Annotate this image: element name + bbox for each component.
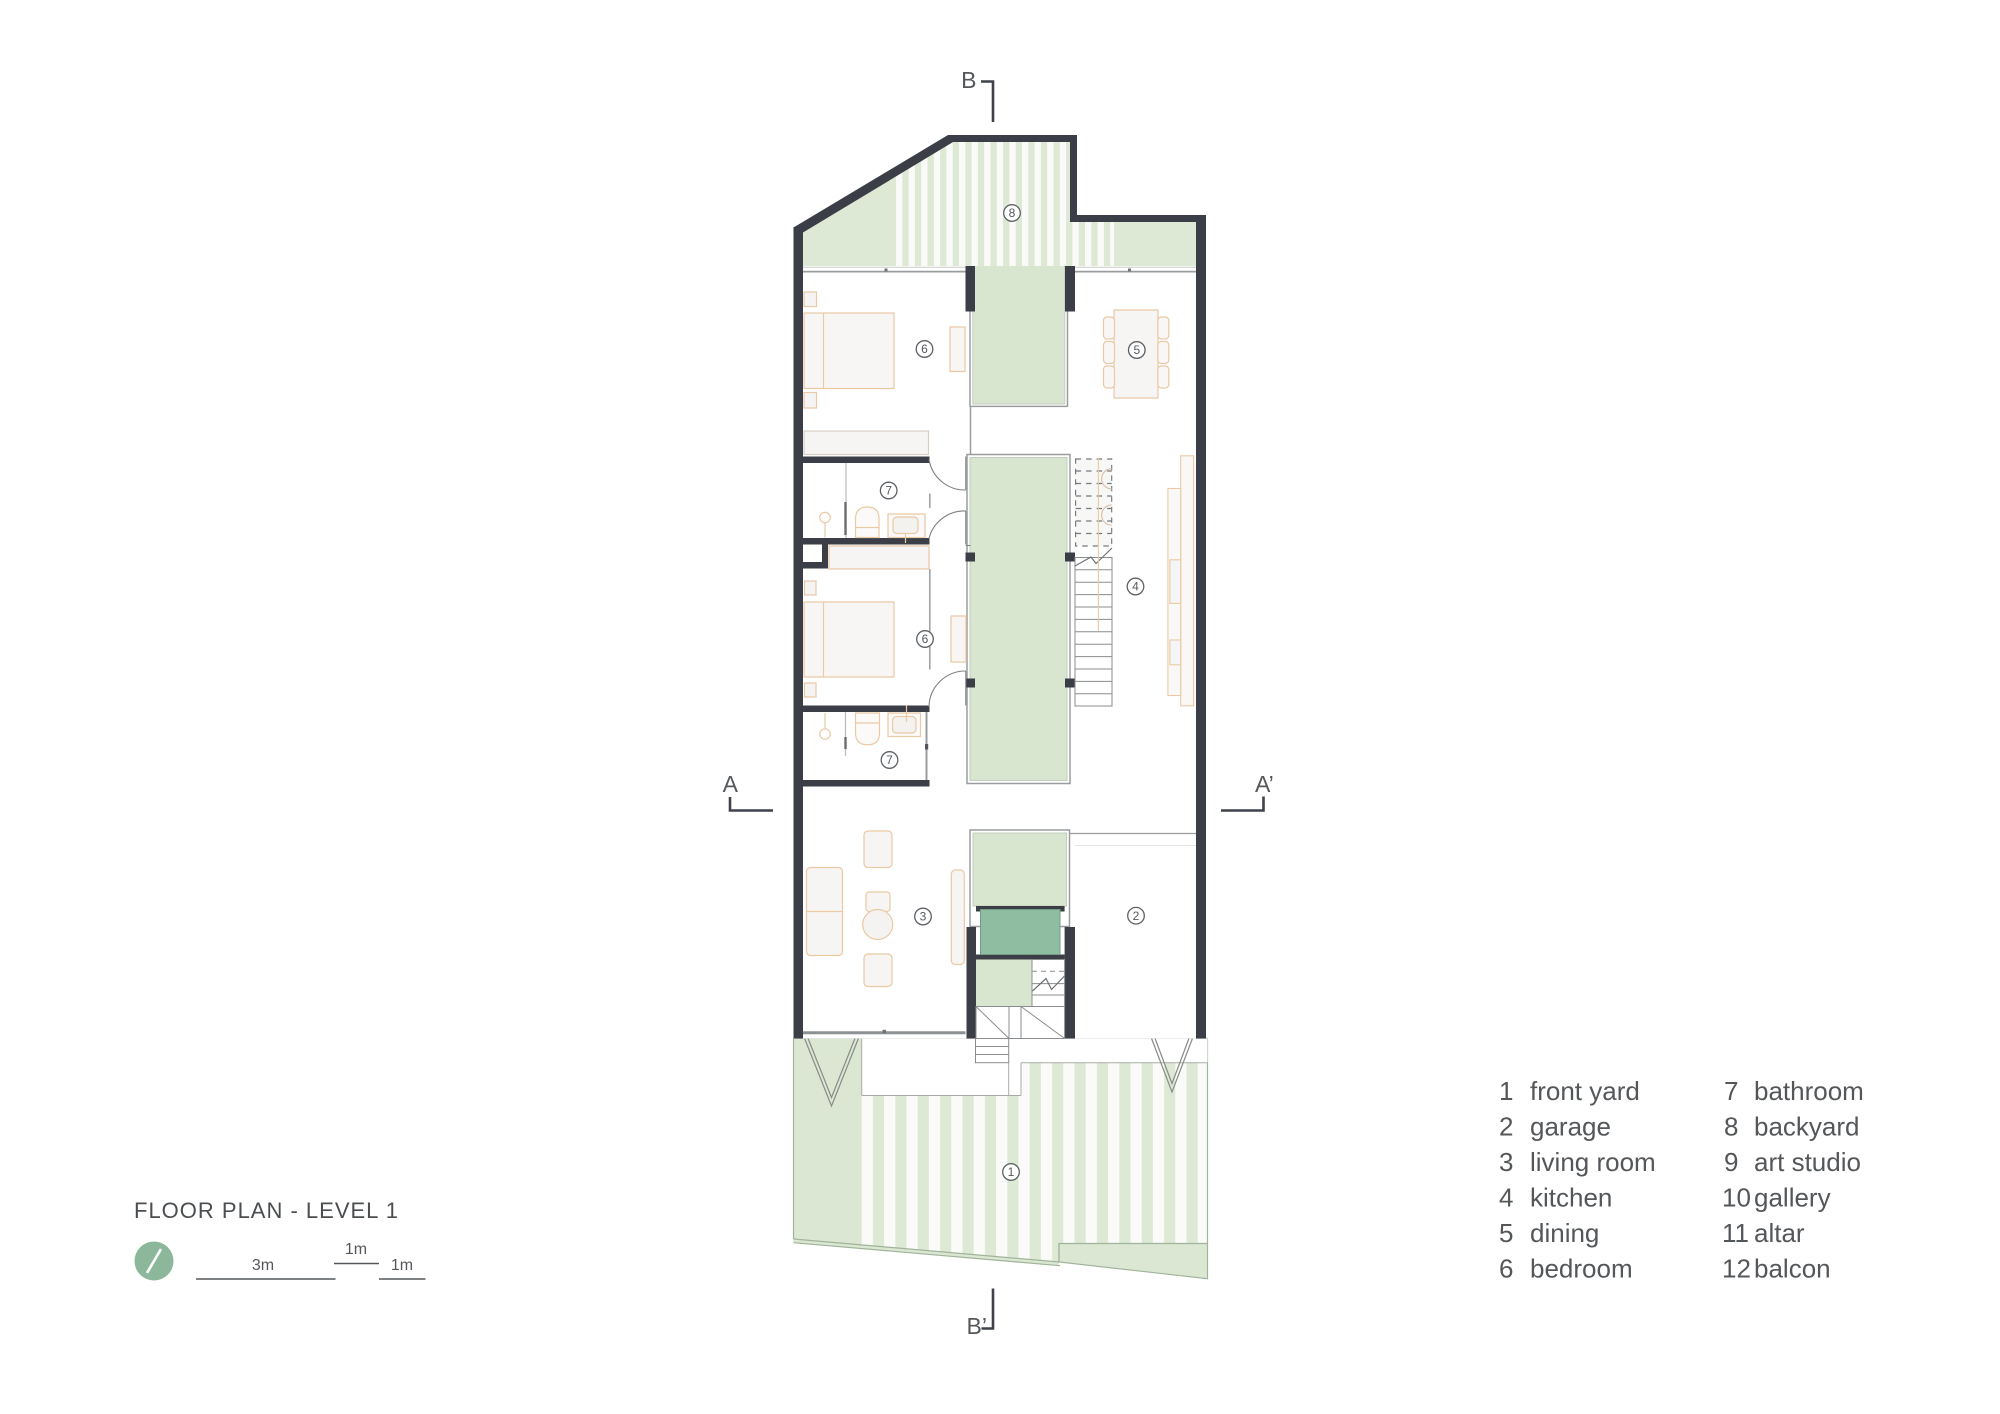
svg-text:art studio: art studio — [1754, 1147, 1861, 1177]
svg-text:front yard: front yard — [1530, 1076, 1640, 1106]
svg-text:7: 7 — [885, 484, 892, 498]
svg-text:backyard: backyard — [1754, 1112, 1860, 1142]
svg-text:kitchen: kitchen — [1530, 1183, 1612, 1213]
svg-text:1m: 1m — [391, 1257, 413, 1274]
svg-text:3: 3 — [1499, 1147, 1513, 1177]
svg-text:10: 10 — [1722, 1183, 1751, 1213]
svg-text:9: 9 — [1724, 1147, 1738, 1177]
svg-text:3: 3 — [920, 910, 927, 924]
svg-text:balcon: balcon — [1754, 1254, 1831, 1284]
svg-text:1m: 1m — [345, 1241, 367, 1258]
svg-text:11: 11 — [1722, 1218, 1749, 1248]
svg-text:1: 1 — [1499, 1076, 1513, 1106]
svg-text:FLOOR PLAN - LEVEL 1: FLOOR PLAN - LEVEL 1 — [134, 1198, 399, 1223]
svg-text:bathroom: bathroom — [1754, 1076, 1864, 1106]
svg-text:6: 6 — [921, 342, 928, 356]
svg-text:12: 12 — [1722, 1254, 1751, 1284]
svg-text:altar: altar — [1754, 1218, 1805, 1248]
svg-text:bedroom: bedroom — [1530, 1254, 1633, 1284]
svg-text:6: 6 — [1499, 1254, 1513, 1284]
svg-text:5: 5 — [1499, 1218, 1513, 1248]
svg-text:7: 7 — [886, 753, 893, 767]
svg-text:B’: B’ — [967, 1313, 987, 1339]
svg-text:A: A — [723, 771, 739, 797]
svg-text:garage: garage — [1530, 1112, 1611, 1142]
svg-text:6: 6 — [922, 632, 929, 646]
svg-text:4: 4 — [1132, 580, 1139, 594]
svg-text:2: 2 — [1133, 909, 1140, 923]
svg-text:4: 4 — [1499, 1183, 1513, 1213]
svg-text:dining: dining — [1530, 1218, 1599, 1248]
svg-text:3m: 3m — [252, 1257, 274, 1274]
svg-text:B: B — [961, 67, 976, 93]
svg-text:gallery: gallery — [1754, 1183, 1831, 1213]
svg-text:8: 8 — [1724, 1112, 1738, 1142]
svg-text:living room: living room — [1530, 1147, 1656, 1177]
svg-text:1: 1 — [1008, 1165, 1015, 1179]
svg-text:5: 5 — [1133, 343, 1140, 357]
svg-text:2: 2 — [1499, 1112, 1513, 1142]
svg-text:7: 7 — [1724, 1076, 1738, 1106]
svg-text:8: 8 — [1009, 206, 1016, 220]
svg-text:A’: A’ — [1255, 771, 1274, 797]
